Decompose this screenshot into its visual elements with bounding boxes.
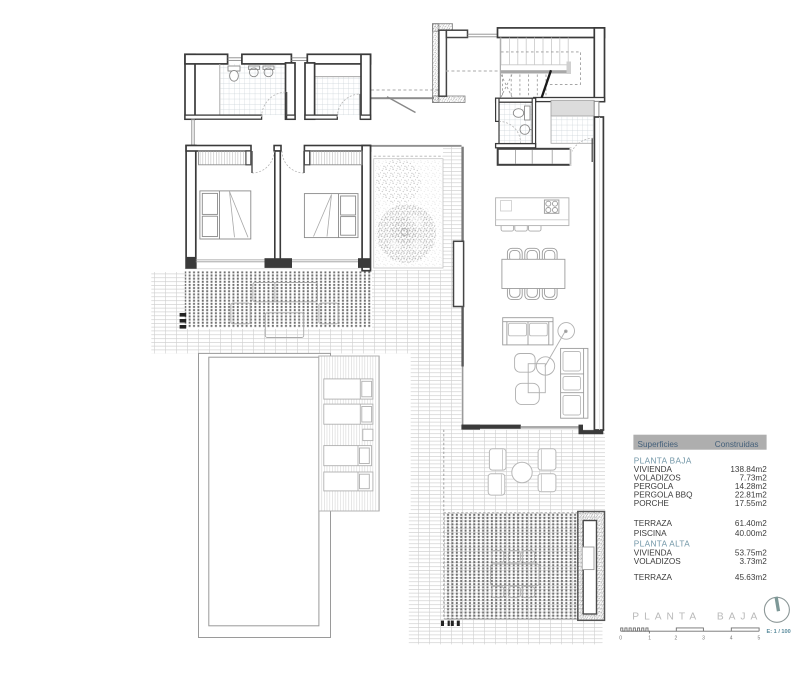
svg-text:4: 4 [730, 636, 733, 642]
svg-text:PISCINA: PISCINA [634, 529, 667, 538]
svg-text:3.73m2: 3.73m2 [739, 557, 767, 566]
svg-text:Construidas: Construidas [715, 440, 759, 449]
svg-text:PLANTA BAJA: PLANTA BAJA [632, 612, 762, 623]
svg-text:40.00m2: 40.00m2 [735, 529, 767, 538]
svg-text:45.63m2: 45.63m2 [735, 573, 767, 582]
svg-text:TERRAZA: TERRAZA [634, 573, 673, 582]
svg-text:61.40m2: 61.40m2 [735, 519, 767, 528]
svg-text:VOLADIZOS: VOLADIZOS [634, 557, 681, 566]
svg-text:17.55m2: 17.55m2 [735, 499, 767, 508]
svg-text:Superficies: Superficies [638, 440, 679, 449]
svg-text:E: 1 / 100: E: 1 / 100 [767, 629, 791, 635]
svg-text:0: 0 [619, 636, 622, 642]
svg-text:5: 5 [758, 636, 761, 642]
svg-text:2: 2 [675, 636, 678, 642]
svg-text:PLANTA ALTA: PLANTA ALTA [634, 539, 690, 548]
svg-text:TERRAZA: TERRAZA [634, 519, 673, 528]
svg-text:1: 1 [648, 636, 651, 642]
svg-text:3: 3 [702, 636, 705, 642]
svg-text:PORCHE: PORCHE [634, 499, 670, 508]
